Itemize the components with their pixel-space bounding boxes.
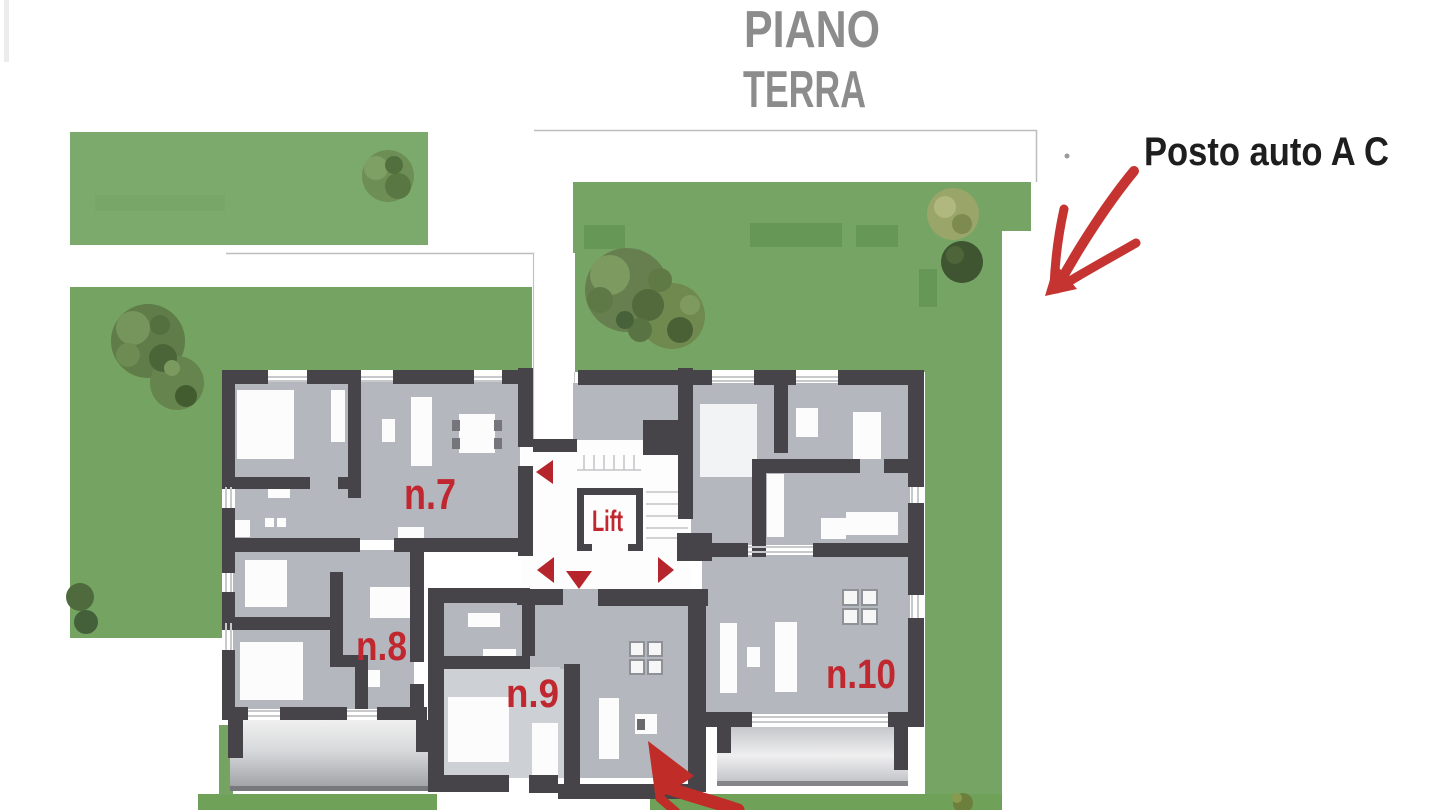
svg-text:Lift: Lift — [592, 505, 623, 538]
svg-text:n.10: n.10 — [826, 651, 896, 697]
svg-text:Posto auto A C: Posto auto A C — [1144, 130, 1389, 174]
svg-text:n.8: n.8 — [356, 623, 407, 669]
svg-text:n.9: n.9 — [506, 672, 559, 716]
svg-text:PIANO: PIANO — [744, 1, 880, 59]
svg-text:n.7: n.7 — [404, 470, 456, 519]
svg-text:TERRA: TERRA — [743, 61, 866, 119]
